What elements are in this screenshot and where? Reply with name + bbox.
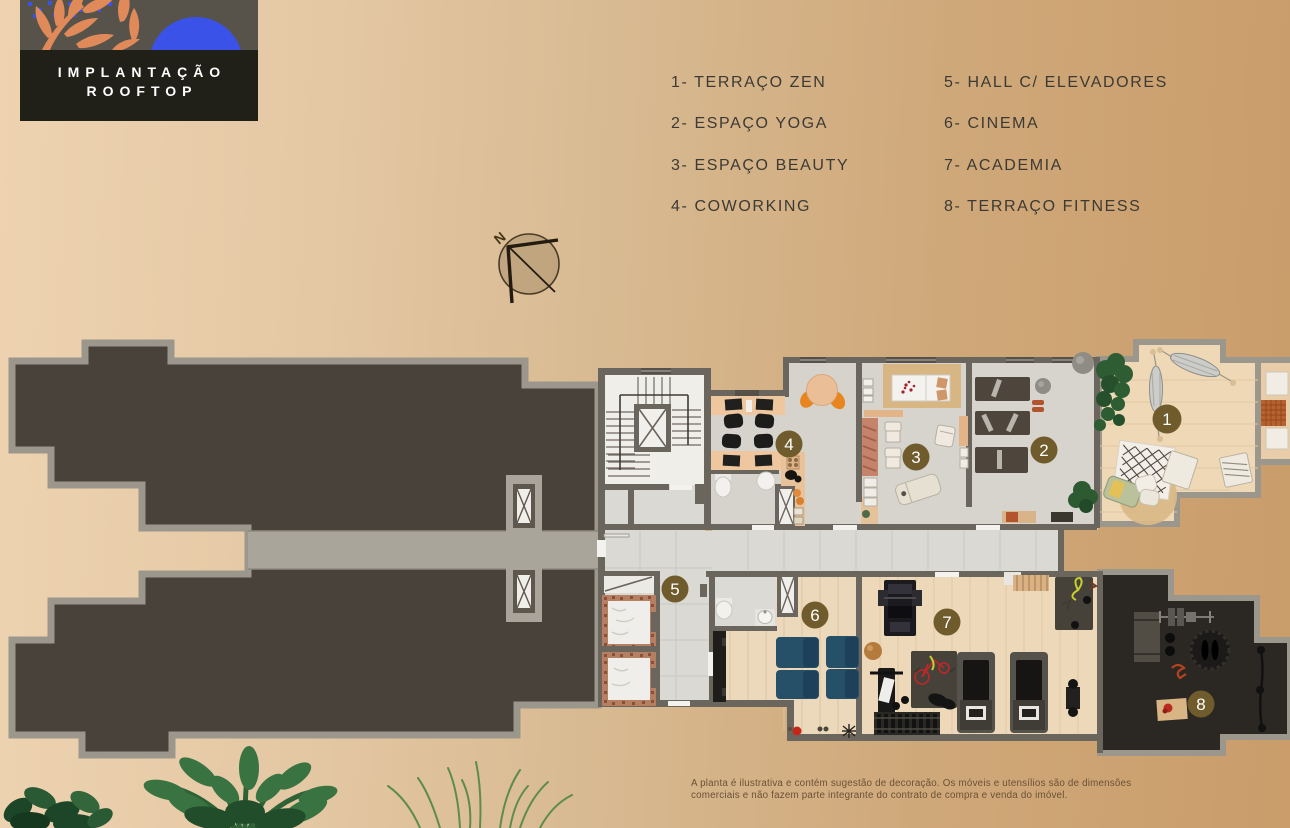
svg-text:4: 4 bbox=[784, 435, 793, 454]
svg-text:2: 2 bbox=[1039, 441, 1048, 460]
svg-text:6: 6 bbox=[810, 606, 819, 625]
svg-text:3: 3 bbox=[911, 448, 920, 467]
svg-text:7: 7 bbox=[942, 613, 951, 632]
svg-text:5: 5 bbox=[670, 580, 679, 599]
svg-text:1: 1 bbox=[1162, 410, 1171, 429]
svg-text:8: 8 bbox=[1196, 695, 1205, 714]
